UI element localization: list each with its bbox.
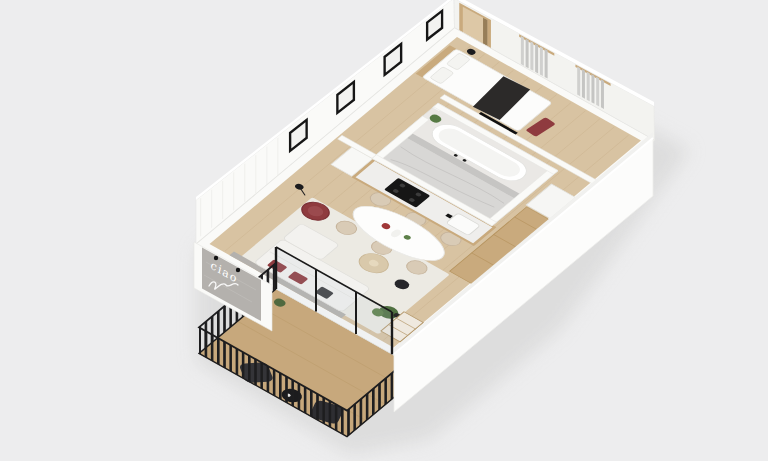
- apartment-render-stage: ciao: [0, 0, 768, 461]
- floor-plan-render: ciao: [0, 0, 768, 461]
